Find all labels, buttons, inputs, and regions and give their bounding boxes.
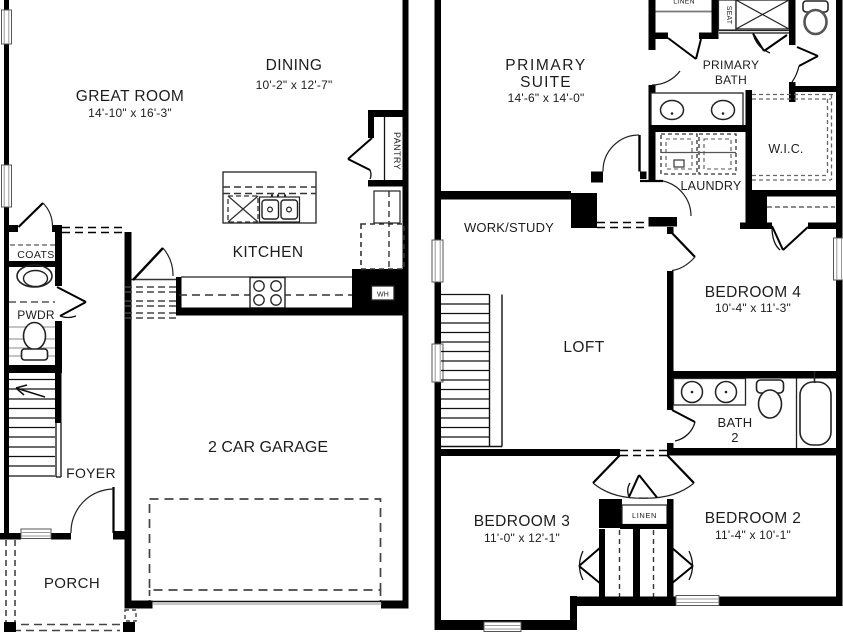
svg-text:LOFT: LOFT	[563, 339, 604, 356]
svg-text:DINING: DINING	[266, 57, 323, 74]
svg-text:BEDROOM 4: BEDROOM 4	[705, 284, 802, 301]
svg-text:WH: WH	[377, 292, 389, 299]
svg-text:BATH: BATH	[715, 73, 747, 87]
svg-text:SUITE: SUITE	[520, 74, 572, 91]
svg-text:10'-4" x 11'-3": 10'-4" x 11'-3"	[715, 301, 791, 315]
svg-text:BATH: BATH	[718, 415, 753, 430]
svg-text:LINEN: LINEN	[673, 0, 695, 6]
svg-text:PANTRY: PANTRY	[392, 132, 402, 170]
svg-text:14'-6" x 14'-0": 14'-6" x 14'-0"	[508, 91, 585, 105]
svg-text:PRIMARY: PRIMARY	[703, 58, 760, 72]
svg-text:BEDROOM 2: BEDROOM 2	[705, 510, 802, 527]
svg-text:FOYER: FOYER	[66, 465, 116, 481]
svg-text:PWDR: PWDR	[17, 308, 55, 322]
svg-text:WORK/STUDY: WORK/STUDY	[464, 220, 554, 235]
svg-text:11'-4" x 10'-1": 11'-4" x 10'-1"	[715, 528, 791, 542]
svg-text:COATS: COATS	[17, 249, 54, 261]
svg-text:LINEN: LINEN	[632, 511, 657, 520]
svg-text:W.I.C.: W.I.C.	[768, 142, 803, 156]
svg-text:PORCH: PORCH	[44, 575, 100, 592]
svg-text:2: 2	[731, 430, 739, 445]
svg-text:GREAT ROOM: GREAT ROOM	[76, 88, 185, 105]
svg-text:PRIMARY: PRIMARY	[505, 57, 587, 74]
svg-text:LAUNDRY: LAUNDRY	[681, 179, 742, 193]
svg-text:10'-2" x 12'-7": 10'-2" x 12'-7"	[256, 78, 333, 92]
svg-text:14'-10" x 16'-3": 14'-10" x 16'-3"	[88, 106, 172, 120]
svg-text:BEDROOM 3: BEDROOM 3	[474, 513, 571, 530]
svg-text:KITCHEN: KITCHEN	[233, 244, 304, 261]
svg-text:2 CAR GARAGE: 2 CAR GARAGE	[208, 439, 328, 456]
svg-text:SEAT: SEAT	[725, 6, 732, 25]
svg-text:11'-0" x 12'-1": 11'-0" x 12'-1"	[484, 531, 560, 545]
